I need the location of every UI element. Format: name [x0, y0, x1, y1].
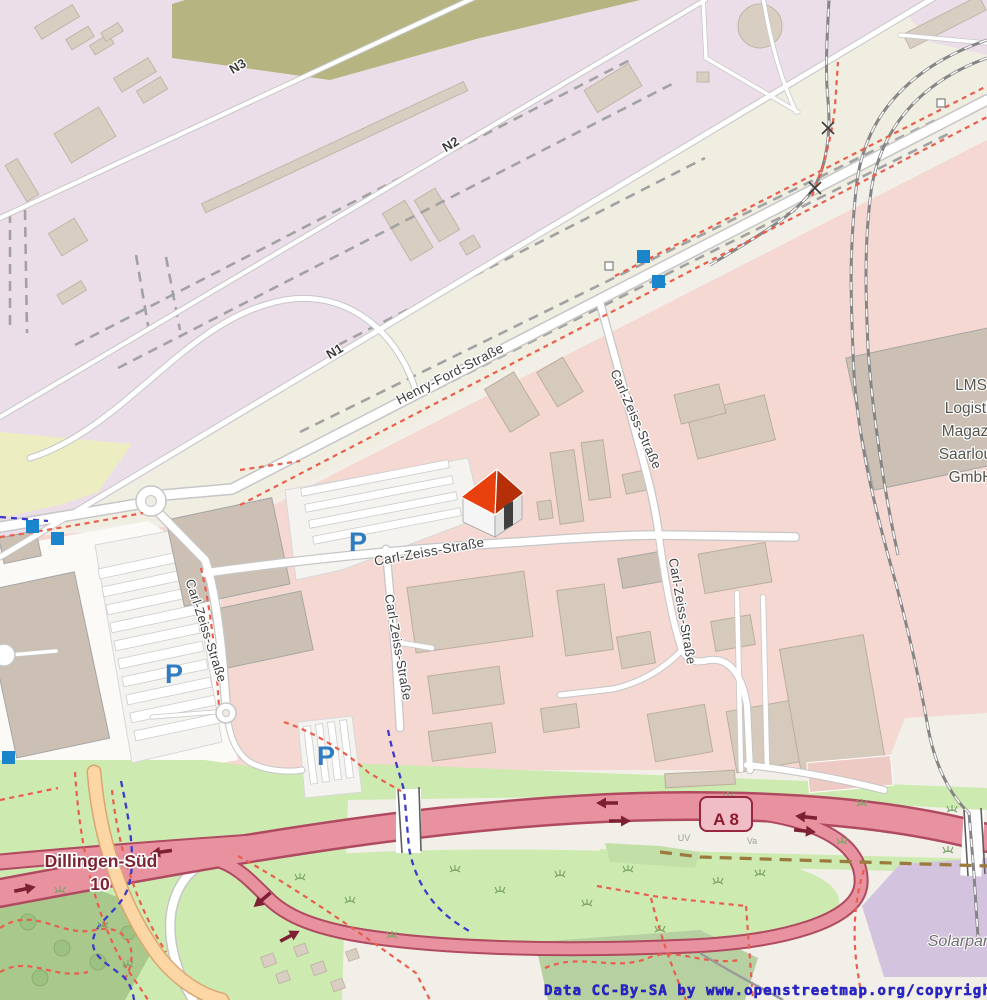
tree [20, 914, 36, 930]
svg-text:Saarlouis: Saarlouis [939, 446, 987, 463]
svg-text:Dillingen-Süd: Dillingen-Süd [45, 851, 158, 871]
house-door [504, 501, 513, 530]
plot-label: UV [678, 833, 691, 843]
building [537, 500, 553, 520]
parking-icon[interactable]: P [317, 741, 335, 771]
building [665, 770, 736, 788]
building [616, 631, 655, 668]
roundabout-minor [216, 703, 236, 723]
solarpark-label: Solarpark [928, 933, 987, 950]
svg-text:GmbH: GmbH [949, 469, 987, 486]
tree [54, 940, 70, 956]
roundabout-major [136, 486, 166, 516]
motorway-ref-label: A 8 [713, 810, 739, 829]
map-node-marker[interactable] [652, 275, 665, 288]
level-crossing-icon [937, 99, 945, 107]
motorway-shield: A 8 [700, 797, 752, 831]
building [647, 704, 712, 761]
svg-text:LMS: LMS [955, 377, 987, 394]
osm-map[interactable]: P P P N3 N2 N1 Henry-Ford-Straße Carl-Ze… [0, 0, 987, 1000]
map-node-marker[interactable] [2, 751, 15, 764]
attribution-text[interactable]: Data CC-By-SA by www.openstreetmap.org/c… [544, 983, 987, 999]
building [557, 584, 614, 656]
map-node-marker[interactable] [26, 520, 39, 533]
svg-text:Magazin: Magazin [942, 423, 987, 440]
tree [32, 970, 48, 986]
building [541, 704, 580, 733]
map-node-marker[interactable] [51, 532, 64, 545]
map-canvas[interactable]: P P P N3 N2 N1 Henry-Ford-Straße Carl-Ze… [0, 0, 987, 1000]
roundabout-edge [0, 644, 15, 666]
building [697, 72, 709, 82]
building [711, 615, 756, 651]
parking-icon[interactable]: P [349, 527, 367, 557]
round-building [738, 4, 782, 48]
parking-icon[interactable]: P [165, 659, 183, 689]
svg-text:Logistik: Logistik [945, 400, 987, 417]
plot-label: Va [747, 836, 757, 846]
map-node-marker[interactable] [637, 250, 650, 263]
svg-text:10: 10 [90, 874, 110, 894]
level-crossing-icon [605, 262, 613, 270]
